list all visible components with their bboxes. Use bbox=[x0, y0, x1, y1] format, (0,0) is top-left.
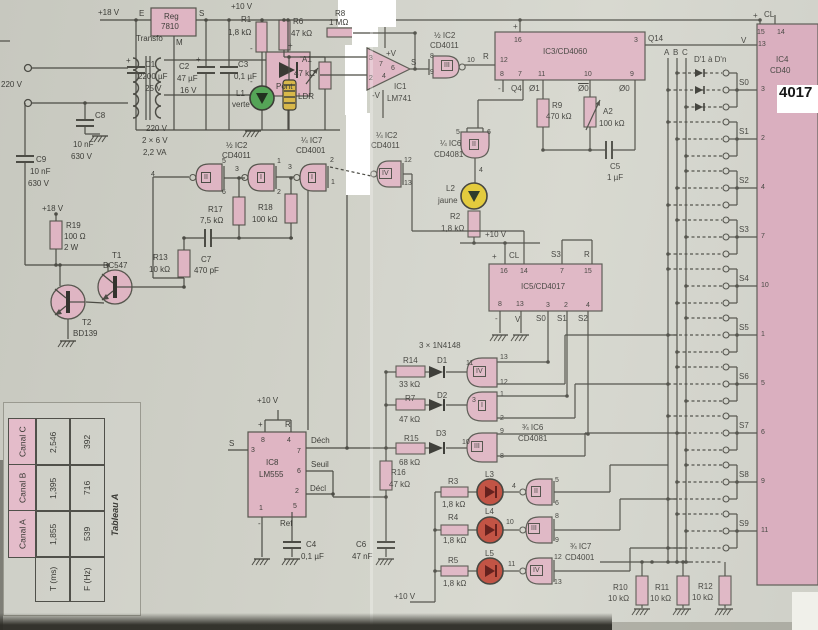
ground-icon bbox=[294, 559, 298, 565]
input-terminal bbox=[25, 65, 32, 72]
junction-dot bbox=[289, 176, 293, 180]
junction-dot bbox=[384, 370, 388, 374]
resistor-R9 bbox=[537, 99, 549, 127]
matrix-junction-dot bbox=[735, 186, 739, 190]
ground-icon bbox=[376, 559, 380, 565]
transistor-bar-T1-BC547 bbox=[113, 276, 117, 298]
matrix-junction-dot bbox=[735, 235, 739, 239]
junction-dot bbox=[237, 236, 241, 240]
junction-dot bbox=[182, 285, 186, 289]
gate-and-IV-ic6 bbox=[467, 358, 497, 387]
matrix-socket-circle bbox=[723, 283, 729, 289]
matrix-junction-dot bbox=[684, 284, 688, 288]
matrix-junction-dot bbox=[666, 333, 670, 337]
matrix-junction-dot bbox=[666, 414, 670, 418]
matrix-socket-circle bbox=[723, 447, 729, 453]
ground-icon bbox=[255, 131, 259, 137]
ground-icon bbox=[715, 609, 719, 615]
ground-icon bbox=[727, 609, 731, 615]
junction-dot bbox=[384, 495, 388, 499]
resistor-R15 bbox=[396, 443, 425, 454]
matrix-junction-dot bbox=[684, 463, 688, 467]
ground-icon bbox=[66, 341, 70, 347]
junction-dot bbox=[106, 263, 110, 267]
matrix-junction-dot bbox=[666, 203, 670, 207]
matrix-socket-circle bbox=[723, 300, 729, 306]
junction-dot bbox=[54, 263, 58, 267]
ground-icon bbox=[681, 609, 685, 615]
ground-icon bbox=[523, 335, 527, 341]
matrix-socket-circle bbox=[723, 87, 729, 93]
matrix-junction-dot bbox=[675, 480, 679, 484]
matrix-socket-circle bbox=[723, 349, 729, 355]
junction-dot bbox=[289, 236, 293, 240]
junction-dot bbox=[237, 176, 241, 180]
ground-icon bbox=[644, 609, 648, 615]
matrix-diode-icon bbox=[695, 103, 703, 111]
junction-dot bbox=[541, 148, 545, 152]
whiteout-patch bbox=[346, 113, 370, 195]
junction-dot bbox=[58, 263, 62, 267]
table-row-label-t: T (ms) bbox=[35, 556, 71, 602]
resistor-R5 bbox=[441, 566, 468, 576]
ground-icon bbox=[94, 136, 98, 142]
matrix-junction-dot bbox=[675, 71, 679, 75]
matrix-junction-dot bbox=[684, 529, 688, 533]
wire bbox=[86, 302, 104, 303]
matrix-junction-dot bbox=[684, 169, 688, 173]
ground-icon bbox=[256, 559, 260, 565]
matrix-socket-circle bbox=[723, 528, 729, 534]
scan-corner-white bbox=[792, 592, 818, 630]
matrix-junction-dot bbox=[675, 512, 679, 516]
ground-icon bbox=[519, 335, 523, 341]
matrix-junction-dot bbox=[684, 154, 688, 158]
opamp-ic1-lm741 bbox=[367, 48, 410, 90]
matrix-socket-circle bbox=[723, 364, 729, 370]
ground-icon bbox=[640, 609, 644, 615]
matrix-junction-dot bbox=[735, 284, 739, 288]
matrix-socket-circle bbox=[723, 430, 729, 436]
matrix-junction-dot bbox=[666, 267, 670, 271]
matrix-socket-circle bbox=[723, 266, 729, 272]
gate-nor-II-ic7 bbox=[526, 479, 552, 505]
matrix-junction-dot bbox=[666, 252, 670, 256]
ground-icon bbox=[719, 609, 723, 615]
matrix-junction-dot bbox=[675, 301, 679, 305]
scanned-schematic-page: S03S12S24S37S410S51S65S76S89S911+18 VESM… bbox=[0, 0, 818, 630]
gate-nor-IV-ic7 bbox=[526, 558, 552, 584]
matrix-diode-icon bbox=[695, 69, 703, 77]
table-t-canal-b: 1,395 bbox=[35, 464, 71, 512]
ground-icon bbox=[636, 609, 640, 615]
diode-D2 bbox=[429, 399, 443, 411]
ground-icon bbox=[511, 335, 515, 341]
matrix-junction-dot bbox=[675, 186, 679, 190]
ground-icon bbox=[673, 609, 677, 615]
ground-icon bbox=[260, 559, 264, 565]
matrix-socket-circle bbox=[723, 168, 729, 174]
junction-dot bbox=[413, 31, 417, 35]
matrix-junction-dot bbox=[735, 529, 739, 533]
matrix-junction-dot bbox=[675, 350, 679, 354]
ic5-cd4017 bbox=[489, 264, 602, 311]
junction-dot bbox=[666, 560, 670, 564]
junction-dot bbox=[518, 18, 522, 22]
junction-dot bbox=[182, 236, 186, 240]
junction-dot bbox=[345, 446, 349, 450]
ic8-lm555 bbox=[248, 432, 306, 517]
resistor-R4 bbox=[441, 525, 468, 535]
matrix-socket-circle bbox=[723, 217, 729, 223]
ground-icon bbox=[677, 609, 681, 615]
table-t-canal-a: 1,855 bbox=[35, 510, 71, 558]
ground-icon bbox=[494, 335, 498, 341]
ground-icon bbox=[515, 335, 519, 341]
ground-icon bbox=[380, 559, 384, 565]
matrix-socket-circle bbox=[723, 70, 729, 76]
resistor-R17 bbox=[233, 197, 245, 225]
matrix-socket-circle bbox=[723, 315, 729, 321]
matrix-socket-circle bbox=[723, 413, 729, 419]
junction-dot bbox=[588, 148, 592, 152]
junction-dot bbox=[640, 560, 644, 564]
resistor-R2 bbox=[468, 211, 480, 237]
table-caption: Tableau A bbox=[106, 465, 124, 565]
matrix-junction-dot bbox=[735, 480, 739, 484]
gate-bubble-nor-II-ic7 bbox=[520, 489, 526, 495]
resistor-R1 bbox=[256, 22, 267, 52]
matrix-junction-dot bbox=[684, 316, 688, 320]
ground-icon bbox=[685, 609, 689, 615]
matrix-socket-circle bbox=[723, 251, 729, 257]
table-t-canal-c: 2,546 bbox=[35, 418, 71, 466]
gate-bubble-nand-III-ic2 bbox=[459, 64, 465, 70]
ground-icon bbox=[243, 131, 247, 137]
junction-dot bbox=[675, 560, 679, 564]
transformer-secondary-coil bbox=[156, 58, 162, 118]
ground-icon bbox=[632, 609, 636, 615]
junction-dot bbox=[546, 360, 550, 364]
gate-and-I-ic6 bbox=[467, 392, 497, 421]
table-header-canal-b: Canal B bbox=[8, 464, 37, 512]
matrix-junction-dot bbox=[735, 431, 739, 435]
resistor-R14 bbox=[396, 366, 425, 377]
junction-dot bbox=[433, 528, 437, 532]
regulator-7810 bbox=[151, 8, 196, 36]
ground-icon bbox=[251, 131, 255, 137]
matrix-junction-dot bbox=[684, 235, 688, 239]
scan-page-seam bbox=[370, 0, 373, 630]
junction-dot bbox=[565, 394, 569, 398]
junction-dot bbox=[286, 18, 290, 22]
transistor-bar-T2-BD139 bbox=[66, 291, 70, 313]
matrix-junction-dot bbox=[675, 431, 679, 435]
junction-dot bbox=[331, 492, 335, 496]
ground-icon bbox=[70, 341, 74, 347]
junction-dot bbox=[204, 18, 208, 22]
matrix-junction-dot bbox=[675, 137, 679, 141]
junction-dot bbox=[758, 18, 762, 22]
ground-icon bbox=[282, 559, 286, 565]
whiteout-patch bbox=[777, 85, 818, 113]
matrix-socket-circle bbox=[723, 462, 729, 468]
diode-D3 bbox=[429, 442, 443, 454]
resistor-R18 bbox=[285, 194, 297, 223]
gate-nand-I-ic2 bbox=[248, 164, 274, 191]
scan-left-edge-shadow bbox=[0, 460, 3, 630]
junction-dot bbox=[586, 432, 590, 436]
ground-icon bbox=[388, 559, 392, 565]
matrix-junction-dot bbox=[675, 218, 679, 222]
scan-bottom-edge-shadow bbox=[0, 613, 612, 630]
junction-dot bbox=[503, 241, 507, 245]
junction-dot bbox=[227, 18, 231, 22]
matrix-junction-dot bbox=[735, 382, 739, 386]
junction-dot bbox=[413, 67, 417, 71]
matrix-junction-dot bbox=[675, 365, 679, 369]
ground-icon bbox=[252, 559, 256, 565]
ground-icon bbox=[98, 136, 102, 142]
matrix-socket-circle bbox=[723, 381, 729, 387]
matrix-junction-dot bbox=[684, 448, 688, 452]
whiteout-patch bbox=[352, 25, 378, 47]
resistor-R11 bbox=[677, 576, 689, 605]
junction-dot bbox=[650, 560, 654, 564]
matrix-socket-circle bbox=[723, 496, 729, 502]
ground-icon bbox=[286, 559, 290, 565]
matrix-junction-dot bbox=[684, 399, 688, 403]
resistor-R10 bbox=[636, 576, 648, 605]
matrix-socket-circle bbox=[723, 511, 729, 517]
resistor-R12 bbox=[719, 576, 731, 605]
gate-and-II-ic6 bbox=[461, 132, 489, 158]
ground-icon bbox=[498, 335, 502, 341]
diode-D1 bbox=[429, 366, 443, 378]
gate-nor-III-ic7 bbox=[526, 517, 552, 543]
table-row-label-f: F (Hz) bbox=[69, 556, 105, 602]
ground-icon bbox=[290, 559, 294, 565]
gate-nor-I-ic7 bbox=[300, 164, 326, 191]
junction-dot bbox=[287, 55, 291, 59]
ground-icon bbox=[502, 335, 506, 341]
ground-icon bbox=[384, 559, 388, 565]
junction-dot bbox=[384, 403, 388, 407]
matrix-socket-circle bbox=[723, 479, 729, 485]
table-f-canal-c: 392 bbox=[69, 418, 105, 466]
matrix-junction-dot bbox=[666, 88, 670, 92]
ground-icon bbox=[90, 136, 94, 142]
gate-bubble-nor-III-ic7 bbox=[520, 527, 526, 533]
resistor-R8 bbox=[327, 28, 353, 37]
matrix-socket-circle bbox=[723, 119, 729, 125]
junction-dot bbox=[260, 18, 264, 22]
matrix-socket-circle bbox=[723, 185, 729, 191]
table-f-canal-b: 716 bbox=[69, 464, 105, 512]
resistor-R16 bbox=[380, 461, 392, 490]
matrix-junction-dot bbox=[666, 497, 670, 501]
ground-icon bbox=[247, 131, 251, 137]
gate-nand-IV-ic2 bbox=[377, 161, 401, 187]
gate-bubble-nor-I-ic7 bbox=[294, 175, 300, 181]
junction-dot bbox=[433, 569, 437, 573]
table-header-canal-c: Canal C bbox=[8, 418, 37, 466]
ground-icon bbox=[264, 559, 268, 565]
matrix-junction-dot bbox=[684, 105, 688, 109]
ground-icon bbox=[58, 341, 62, 347]
gate-nand-II-ic2 bbox=[196, 164, 222, 191]
junction-dot bbox=[134, 18, 138, 22]
junction-dot bbox=[54, 212, 58, 216]
matrix-socket-circle bbox=[723, 332, 729, 338]
matrix-junction-dot bbox=[666, 546, 670, 550]
ic3-cd4060 bbox=[495, 32, 645, 80]
gate-nand-III-ic2 bbox=[433, 56, 459, 78]
matrix-junction-dot bbox=[735, 137, 739, 141]
gate-bubble-nand-II-ic2 bbox=[190, 175, 196, 181]
scan-bottom-edge-shadow-right bbox=[612, 622, 818, 630]
matrix-socket-circle bbox=[723, 234, 729, 240]
matrix-junction-dot bbox=[735, 333, 739, 337]
matrix-socket-circle bbox=[723, 136, 729, 142]
resistor-R13 bbox=[178, 250, 190, 277]
junction-dot bbox=[684, 560, 688, 564]
matrix-socket-circle bbox=[723, 202, 729, 208]
matrix-junction-dot bbox=[666, 120, 670, 124]
resistor-R7 bbox=[396, 399, 425, 410]
ground-icon bbox=[723, 609, 727, 615]
junction-dot bbox=[282, 18, 286, 22]
matrix-socket-circle bbox=[723, 545, 729, 551]
matrix-junction-dot bbox=[666, 382, 670, 386]
whiteout-patch bbox=[345, 45, 367, 115]
junction-dot bbox=[83, 101, 87, 105]
junction-dot bbox=[472, 241, 476, 245]
ground-icon bbox=[62, 341, 66, 347]
table-f-canal-a: 539 bbox=[69, 510, 105, 558]
matrix-socket-circle bbox=[723, 104, 729, 110]
matrix-socket-circle bbox=[723, 153, 729, 159]
resistor-R3 bbox=[441, 487, 468, 497]
junction-dot bbox=[384, 446, 388, 450]
resistor-R19 bbox=[50, 221, 62, 249]
gate-and-III-ic6 bbox=[467, 433, 497, 462]
table-header-canal-a: Canal A bbox=[8, 510, 37, 558]
matrix-junction-dot bbox=[735, 88, 739, 92]
matrix-socket-circle bbox=[723, 398, 729, 404]
ground-icon bbox=[490, 335, 494, 341]
ground-icon bbox=[102, 136, 106, 142]
whiteout-patch bbox=[338, 0, 396, 27]
matrix-diode-icon bbox=[695, 86, 703, 94]
gate-bubble-nor-IV-ic7 bbox=[520, 568, 526, 574]
